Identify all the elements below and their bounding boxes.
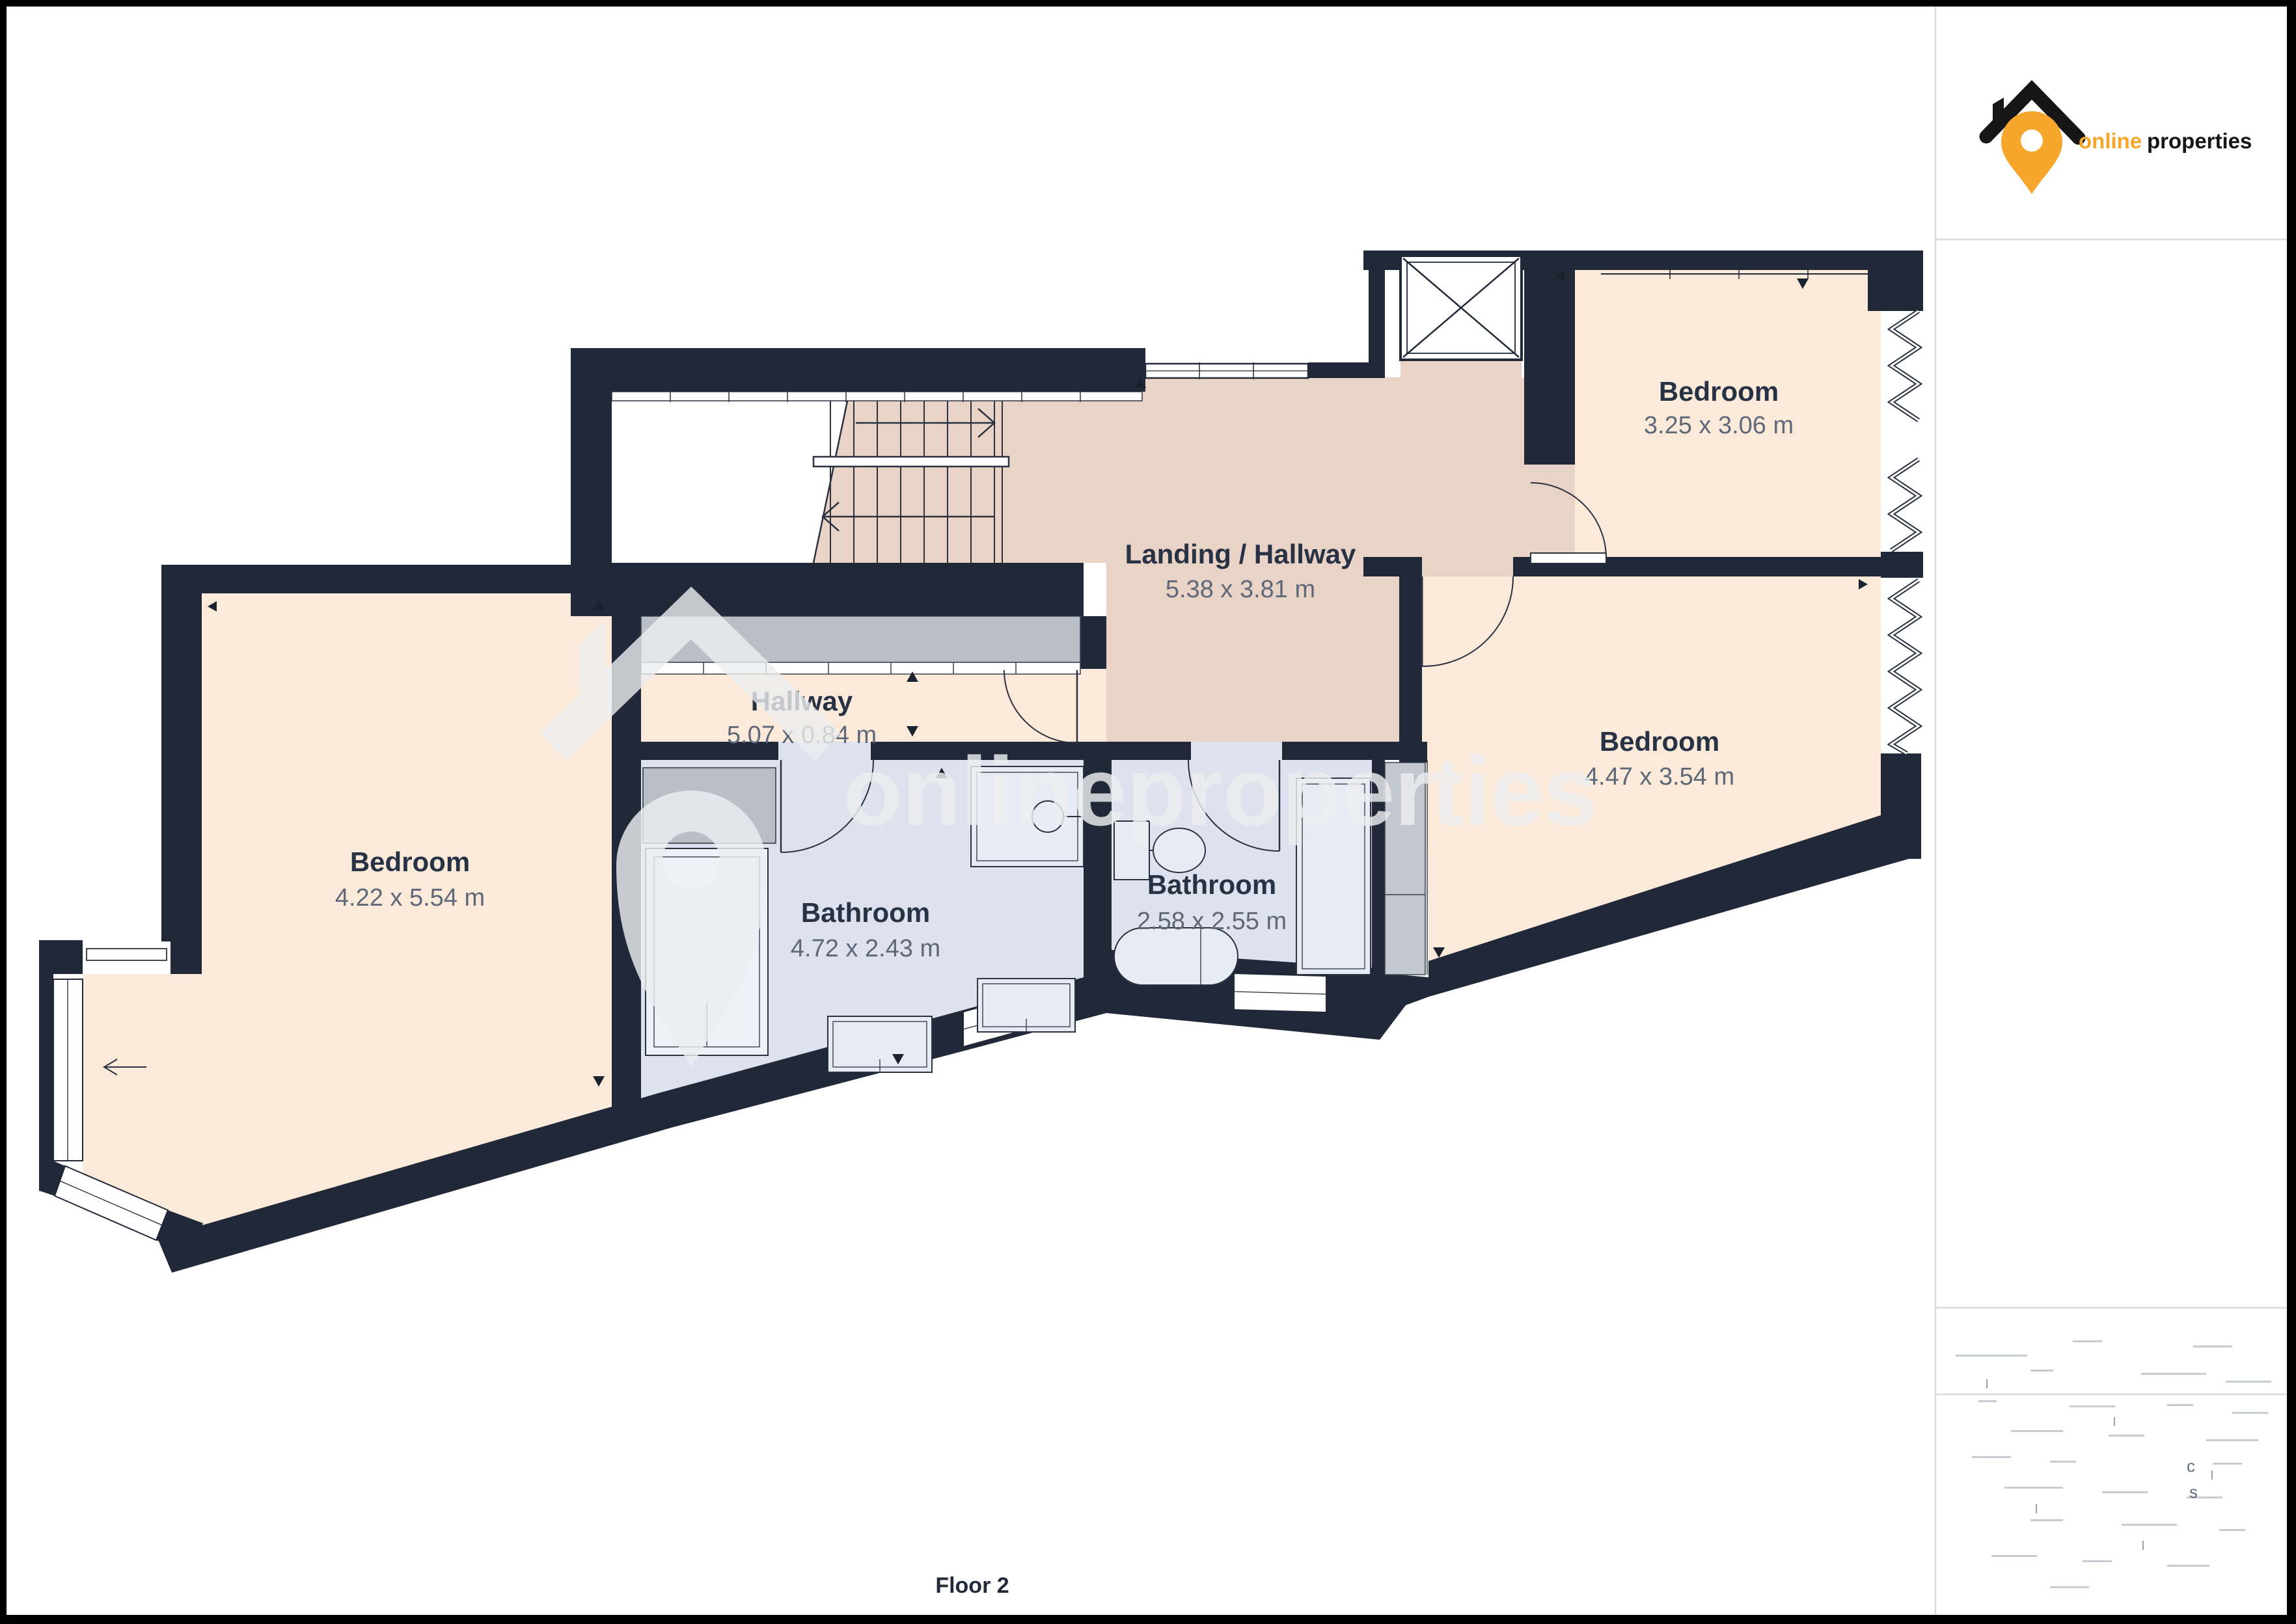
zigzag-windows xyxy=(1891,311,1919,753)
bathroom-main-name: Bathroom xyxy=(801,897,930,928)
door-annex xyxy=(87,949,167,960)
faint-char-c: c xyxy=(2187,1456,2195,1476)
bedroom-top-dims: 3.25 x 3.06 m xyxy=(1644,412,1794,439)
floorplan-page: Bedroom 3.25 x 3.06 m Landing / Hallway … xyxy=(0,0,2296,1624)
logo-house-pin-icon xyxy=(1986,90,2079,194)
stair-balustrade xyxy=(612,390,1142,402)
sink-right xyxy=(977,979,1075,1032)
bathroom-small-dims: 2.58 x 2.55 m xyxy=(1137,908,1287,935)
landing-dims: 5.38 x 3.81 m xyxy=(1166,576,1315,603)
landing-window xyxy=(1145,362,1308,379)
floor-label: Floor 2 xyxy=(935,1573,1009,1598)
bathroom-small-window xyxy=(1234,973,1326,1012)
sink-left xyxy=(828,1016,932,1072)
logo-text-online: online xyxy=(2079,129,2142,153)
logo-text-properties: properties xyxy=(2147,129,2252,153)
logo: online properties xyxy=(1986,90,2252,194)
bathroom-main-dims: 4.72 x 2.43 m xyxy=(791,935,940,962)
bedroom-left-dims: 4.22 x 5.54 m xyxy=(335,884,485,912)
bedroom-right-dims: 4.47 x 3.54 m xyxy=(1585,763,1734,791)
bathtub-small-bath xyxy=(1114,928,1238,985)
faint-char-s: s xyxy=(2189,1482,2198,1502)
elevator-shaft xyxy=(1401,256,1522,360)
landing-floor xyxy=(813,392,1369,563)
bedroom-top-name: Bedroom xyxy=(1659,376,1779,407)
sidebar-dividers xyxy=(1935,7,2287,1615)
floorplan-canvas: Bedroom 3.25 x 3.06 m Landing / Hallway … xyxy=(0,0,2296,1624)
annex-window xyxy=(53,979,83,1161)
stair-handrail xyxy=(813,457,1009,467)
bedroom-right-name: Bedroom xyxy=(1600,726,1719,757)
bedroom-left-name: Bedroom xyxy=(350,846,470,877)
bathroom-small-name: Bathroom xyxy=(1147,869,1276,900)
watermark-text: onlineproperties xyxy=(843,737,1597,846)
faint-marks xyxy=(1956,1340,2271,1588)
landing-name: Landing / Hallway xyxy=(1125,539,1356,569)
